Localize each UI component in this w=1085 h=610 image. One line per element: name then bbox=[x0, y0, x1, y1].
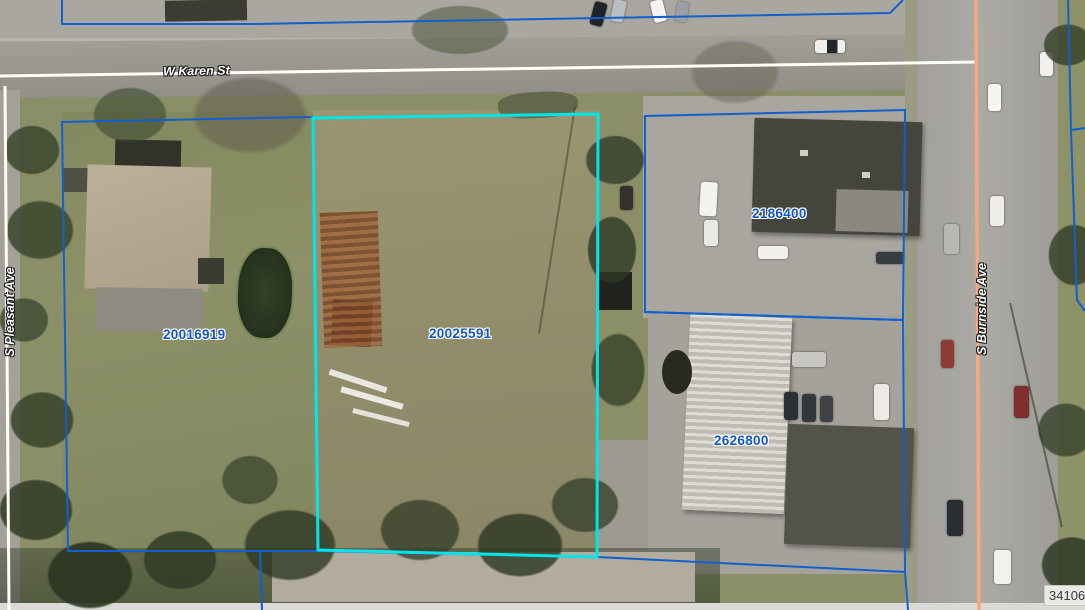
parcel-boundary-east-stub[interactable] bbox=[1071, 128, 1085, 130]
street-label-s-pleasant-ave: S Pleasant Ave bbox=[3, 267, 17, 357]
centerline-w-karen-st bbox=[0, 62, 977, 76]
parcel-label-20025591[interactable]: 20025591 bbox=[429, 326, 491, 341]
map-canvas[interactable]: W Karen St S Pleasant Ave S Burnside Ave… bbox=[0, 0, 1085, 610]
street-label-w-karen-st: W Karen St bbox=[163, 63, 230, 78]
parcel-label-2186400[interactable]: 2186400 bbox=[752, 206, 807, 221]
parcel-boundary-east-burnside[interactable] bbox=[1068, 0, 1085, 311]
street-label-s-burnside-ave: S Burnside Ave bbox=[975, 259, 989, 359]
parcel-label-2626800[interactable]: 2626800 bbox=[714, 433, 769, 448]
parcel-boundary-20016919[interactable] bbox=[62, 117, 908, 610]
parcel-boundary-2626800[interactable] bbox=[645, 312, 905, 572]
parcel-boundary-north-lot[interactable] bbox=[62, 0, 903, 24]
parcel-label-20016919[interactable]: 20016919 bbox=[163, 327, 225, 342]
map-sheet-number: 341068 bbox=[1044, 585, 1085, 606]
parcel-boundary-south-split[interactable] bbox=[260, 552, 262, 610]
